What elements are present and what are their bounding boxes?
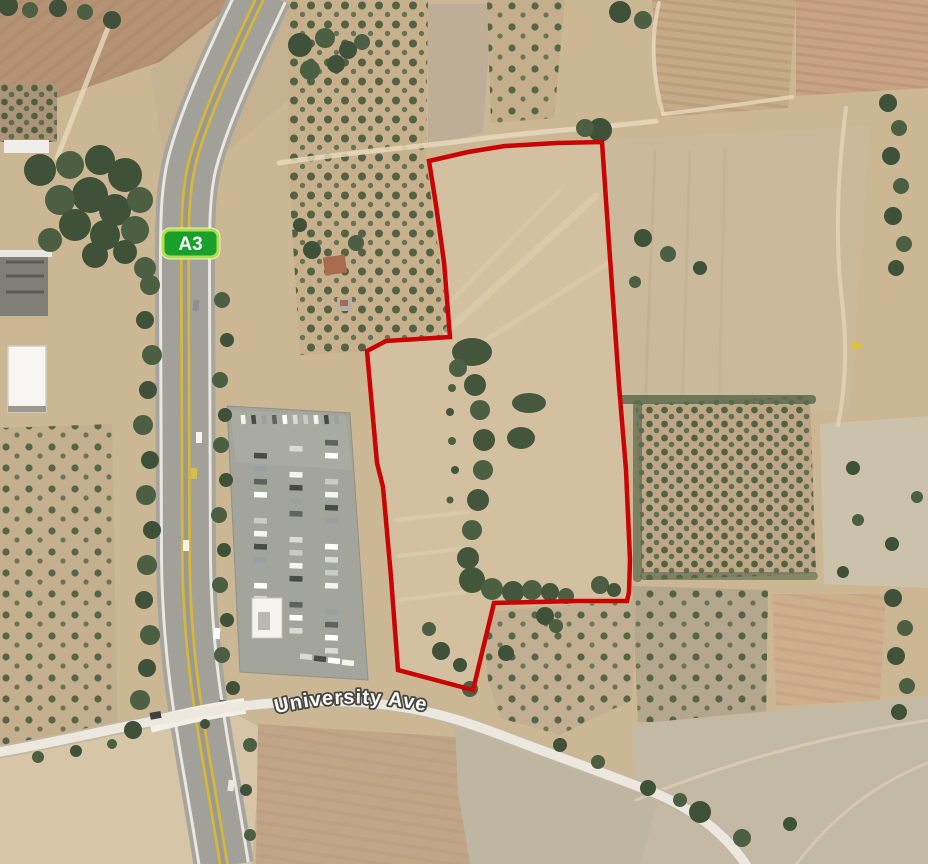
olive-grove-west: [0, 424, 118, 750]
map-canvas: A3 University Ave: [0, 0, 928, 864]
building-warehouse: [8, 346, 46, 412]
tree: [422, 622, 436, 636]
tree: [846, 461, 860, 475]
olive-grove-east: [636, 396, 816, 580]
tree: [288, 33, 312, 57]
tree: [113, 240, 137, 264]
tree: [884, 589, 902, 607]
tree: [783, 817, 797, 831]
tree: [220, 613, 234, 627]
route-badge-label: A3: [178, 234, 202, 255]
tree: [893, 178, 909, 194]
tree: [576, 119, 594, 137]
tree: [214, 292, 230, 308]
parked-car: [325, 544, 338, 550]
tree: [220, 333, 234, 347]
parked-car: [313, 415, 318, 424]
parking-lot: [227, 406, 368, 680]
tree: [219, 473, 233, 487]
tree: [673, 793, 687, 807]
tree: [885, 537, 899, 551]
tree: [70, 745, 82, 757]
tree: [136, 311, 154, 329]
vehicle: [183, 540, 189, 551]
tree: [634, 11, 652, 29]
tree: [243, 738, 257, 752]
vehicle: [193, 300, 200, 311]
olive-grove-southeast: [632, 586, 768, 722]
parked-car: [289, 498, 302, 504]
tree: [348, 235, 364, 251]
tree: [138, 659, 156, 677]
tree: [212, 577, 228, 593]
tree: [22, 2, 38, 18]
tree: [130, 690, 150, 710]
tree: [135, 591, 153, 609]
tree: [211, 507, 227, 523]
tree: [124, 721, 142, 739]
tree: [884, 207, 902, 225]
orchard-west: [288, 0, 450, 355]
vehicle: [196, 432, 202, 443]
tree: [897, 620, 913, 636]
tree: [103, 11, 121, 29]
parked-car: [289, 576, 302, 582]
parked-car: [325, 492, 338, 498]
parked-car: [289, 472, 302, 478]
tree: [24, 154, 56, 186]
tree: [140, 275, 160, 295]
tree: [640, 780, 656, 796]
parked-car: [325, 518, 338, 524]
tree: [303, 241, 321, 259]
parked-car: [272, 415, 277, 424]
parked-car: [325, 505, 338, 511]
parked-car: [254, 544, 267, 550]
parked-car: [254, 518, 267, 524]
tree: [139, 381, 157, 399]
tree: [891, 120, 907, 136]
parked-car: [261, 415, 266, 424]
tree: [591, 755, 605, 769]
tree: [629, 276, 641, 288]
tree: [888, 260, 904, 276]
parked-car: [254, 466, 267, 472]
parked-car: [289, 563, 302, 569]
tree: [879, 94, 897, 112]
parked-car: [289, 550, 302, 556]
tree: [226, 681, 240, 695]
tree: [200, 719, 210, 729]
tree: [107, 739, 117, 749]
parked-car: [325, 570, 338, 576]
tree: [354, 34, 370, 50]
tree: [213, 437, 229, 453]
parked-car: [289, 485, 302, 491]
tree: [127, 187, 153, 213]
parked-car: [303, 415, 308, 424]
tree: [108, 158, 142, 192]
vehicle: [214, 628, 221, 639]
tree: [453, 658, 467, 672]
tree: [140, 625, 160, 645]
tree: [59, 209, 91, 241]
tree: [432, 642, 450, 660]
tree: [217, 543, 231, 557]
tree: [121, 216, 149, 244]
vehicle: [191, 468, 197, 479]
building-shed: [4, 140, 49, 153]
tree: [609, 1, 631, 23]
parked-car: [289, 511, 302, 517]
parked-car: [254, 479, 267, 485]
parked-car: [289, 446, 302, 452]
tree: [498, 645, 514, 661]
parked-car: [254, 453, 267, 459]
tree: [77, 4, 93, 20]
parked-car: [325, 479, 338, 485]
parked-car: [325, 557, 338, 563]
parked-car: [289, 615, 302, 621]
tree: [549, 619, 563, 633]
parked-car: [251, 415, 256, 424]
parked-car: [325, 648, 338, 654]
tree: [693, 261, 707, 275]
tree: [634, 229, 652, 247]
tree: [32, 751, 44, 763]
parked-car: [325, 583, 338, 589]
parked-car: [254, 583, 267, 589]
parked-car: [254, 557, 267, 563]
tree: [293, 218, 307, 232]
parked-car: [325, 609, 338, 615]
tree: [141, 451, 159, 469]
tree: [82, 242, 108, 268]
tree: [142, 345, 162, 365]
satellite-map[interactable]: A3 University Ave: [0, 0, 928, 864]
orchard-north: [487, 0, 565, 123]
tree: [837, 566, 849, 578]
tree: [891, 704, 907, 720]
parked-car: [241, 415, 246, 424]
parked-car: [334, 415, 339, 424]
tree: [56, 151, 84, 179]
parked-car: [254, 492, 267, 498]
tree: [143, 521, 161, 539]
tree: [137, 555, 157, 575]
tree: [38, 228, 62, 252]
tree: [136, 485, 156, 505]
tree: [214, 647, 230, 663]
tree: [315, 28, 335, 48]
parked-car: [325, 622, 338, 628]
tree: [244, 829, 256, 841]
tree: [733, 829, 751, 847]
tree: [896, 236, 912, 252]
parked-car: [325, 453, 338, 459]
route-badge: A3: [163, 230, 218, 257]
parked-car: [325, 440, 338, 446]
tree: [553, 738, 567, 752]
tree: [218, 408, 232, 422]
parked-car: [324, 415, 329, 424]
parked-car: [282, 415, 287, 424]
parked-car: [325, 635, 338, 641]
parked-car: [289, 537, 302, 543]
tree: [240, 784, 252, 796]
tree: [882, 147, 900, 165]
tree: [327, 55, 345, 73]
tree: [212, 372, 228, 388]
building-house-roof: [323, 255, 347, 276]
tree: [133, 415, 153, 435]
tree: [660, 246, 676, 262]
tree: [689, 801, 711, 823]
tree: [899, 678, 915, 694]
parked-car: [289, 602, 302, 608]
tree: [887, 647, 905, 665]
tree: [852, 514, 864, 526]
parked-car: [254, 531, 267, 537]
tree: [300, 60, 320, 80]
parked-car: [289, 628, 302, 634]
tree: [911, 491, 923, 503]
parked-car: [293, 415, 298, 424]
